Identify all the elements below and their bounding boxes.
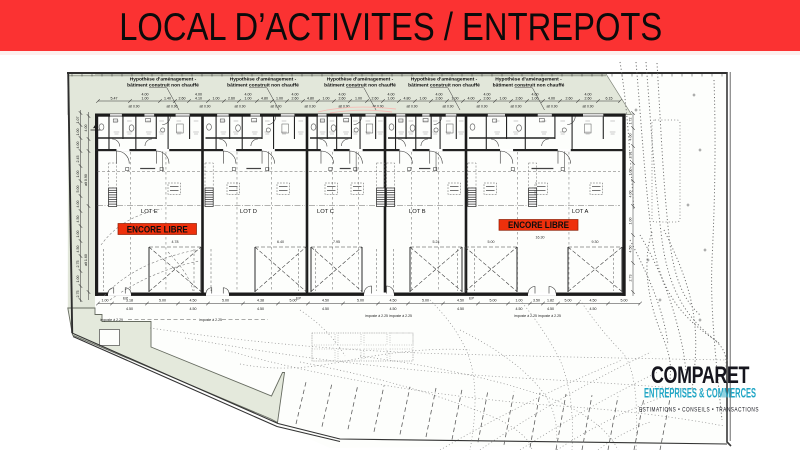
svg-text:alt 0.90: alt 0.90: [84, 174, 88, 186]
svg-text:1.00: 1.00: [76, 129, 80, 136]
svg-text:4.50: 4.50: [126, 307, 133, 311]
svg-text:1.00: 1.00: [388, 97, 395, 101]
svg-text:2.75: 2.75: [76, 261, 80, 268]
svg-text:5.47: 5.47: [111, 97, 118, 101]
svg-text:2.60: 2.60: [228, 97, 235, 101]
svg-text:2.60: 2.60: [516, 97, 523, 101]
svg-text:imposte à 2.25: imposte à 2.25: [389, 314, 412, 318]
svg-text:alt 0.90: alt 0.90: [304, 105, 315, 109]
svg-text:Hypothèse d’aménagement -: Hypothèse d’aménagement -: [230, 77, 297, 83]
svg-text:alt 0.90: alt 0.90: [270, 105, 281, 109]
svg-text:2.60: 2.60: [292, 97, 299, 101]
svg-text:4.50: 4.50: [516, 307, 523, 311]
svg-text:4.50: 4.50: [322, 299, 329, 303]
svg-text:imposte à 2.25: imposte à 2.25: [199, 318, 222, 322]
svg-text:LOT D: LOT D: [240, 209, 257, 215]
svg-text:4.00: 4.00: [195, 93, 202, 97]
svg-text:LOT B: LOT B: [409, 209, 426, 215]
svg-text:4.50: 4.50: [322, 307, 329, 311]
svg-text:EP: EP: [296, 297, 302, 301]
svg-text:2.60: 2.60: [566, 97, 573, 101]
svg-text:4.00: 4.00: [585, 93, 592, 97]
svg-text:4.00: 4.00: [436, 93, 443, 97]
svg-text:5.00: 5.00: [621, 299, 628, 303]
svg-text:4.00: 4.00: [292, 93, 299, 97]
svg-text:4.00: 4.00: [339, 93, 346, 97]
svg-text:4.00: 4.00: [548, 97, 555, 101]
svg-text:5.24: 5.24: [433, 240, 440, 244]
svg-text:alt 0.90: alt 0.90: [582, 105, 593, 109]
svg-text:2.60: 2.60: [372, 97, 379, 101]
svg-text:EP: EP: [469, 297, 475, 301]
svg-text:1.00: 1.00: [500, 97, 507, 101]
svg-text:Hypothèse d’aménagement -: Hypothèse d’aménagement -: [130, 77, 197, 83]
svg-text:7.95: 7.95: [333, 240, 340, 244]
svg-text:4.00: 4.00: [532, 93, 539, 97]
svg-text:4.50: 4.50: [190, 307, 197, 311]
svg-text:4.00: 4.00: [629, 191, 633, 198]
svg-text:alt 0.90: alt 0.90: [442, 105, 453, 109]
svg-text:Hypothèse d’aménagement -: Hypothèse d’aménagement -: [495, 77, 562, 83]
svg-text:4.50: 4.50: [629, 246, 633, 253]
svg-text:5.00: 5.00: [76, 186, 80, 193]
svg-text:9.30: 9.30: [592, 240, 599, 244]
svg-text:5.00: 5.00: [565, 299, 572, 303]
svg-text:4.50: 4.50: [257, 307, 264, 311]
svg-text:4.00: 4.00: [468, 97, 475, 101]
svg-text:4.80: 4.80: [404, 97, 411, 101]
svg-text:2.73: 2.73: [629, 275, 633, 282]
svg-text:alt 0.90: alt 0.90: [234, 105, 245, 109]
svg-text:imposte à 2.29: imposte à 2.29: [100, 318, 123, 322]
svg-text:1.00: 1.00: [516, 299, 523, 303]
svg-text:alt 0.90: alt 0.90: [166, 105, 177, 109]
svg-text:2.75: 2.75: [76, 291, 80, 298]
svg-text:4.00: 4.00: [388, 93, 395, 97]
svg-text:4.00: 4.00: [76, 142, 80, 149]
svg-text:1.82: 1.82: [547, 299, 554, 303]
svg-text:3.50: 3.50: [533, 299, 540, 303]
svg-text:1.00: 1.00: [629, 218, 633, 225]
svg-text:5.00: 5.00: [488, 240, 495, 244]
svg-text:ENCORE LIBRE: ENCORE LIBRE: [127, 224, 188, 234]
svg-text:ESTIMATIONS • CONSEILS • TRANS: ESTIMATIONS • CONSEILS • TRANSACTIONS: [639, 407, 759, 414]
svg-text:2.60: 2.60: [436, 97, 443, 101]
svg-text:imposte à 2.25: imposte à 2.25: [365, 314, 388, 318]
svg-text:imposte à 2.25: imposte à 2.25: [514, 314, 537, 318]
svg-text:Hypothèse d’aménagement -: Hypothèse d’aménagement -: [411, 77, 478, 83]
svg-text:alt 1.60: alt 1.60: [84, 254, 88, 266]
svg-text:EP: EP: [123, 297, 129, 301]
svg-text:LOT C: LOT C: [317, 209, 334, 215]
svg-text:4.80: 4.80: [307, 97, 314, 101]
svg-text:1.00: 1.00: [452, 97, 459, 101]
svg-text:alt 0.90: alt 0.90: [476, 105, 487, 109]
svg-text:1.00: 1.00: [420, 97, 427, 101]
svg-text:1.00: 1.00: [76, 276, 80, 283]
svg-text:1.40: 1.40: [164, 97, 171, 101]
svg-text:4.50: 4.50: [190, 299, 197, 303]
svg-text:1.07: 1.07: [76, 117, 80, 124]
svg-text:2.60: 2.60: [339, 97, 346, 101]
svg-text:1.00: 1.00: [213, 97, 220, 101]
svg-text:2.60: 2.60: [484, 97, 491, 101]
svg-text:5.00: 5.00: [159, 299, 166, 303]
svg-text:4.50: 4.50: [390, 299, 397, 303]
svg-text:5.00: 5.00: [357, 299, 364, 303]
svg-text:5.00: 5.00: [490, 299, 497, 303]
svg-text:1.00: 1.00: [142, 97, 149, 101]
svg-text:5.00: 5.00: [422, 299, 429, 303]
svg-text:4.00: 4.00: [76, 201, 80, 208]
svg-text:1.00: 1.00: [323, 97, 330, 101]
svg-text:4.50: 4.50: [457, 307, 464, 311]
svg-text:4.50: 4.50: [76, 216, 80, 223]
svg-text:6.40: 6.40: [277, 240, 284, 244]
svg-text:ENCORE LIBRE: ENCORE LIBRE: [508, 220, 569, 230]
svg-text:4.00: 4.00: [84, 125, 88, 132]
svg-text:16.30: 16.30: [536, 236, 545, 240]
svg-text:imposte à 2.25: imposte à 2.25: [538, 314, 561, 318]
svg-text:1.00: 1.00: [355, 97, 362, 101]
svg-text:1.00: 1.00: [245, 97, 252, 101]
svg-text:1.00: 1.00: [276, 97, 283, 101]
svg-text:4.50: 4.50: [390, 307, 397, 311]
svg-text:4.50: 4.50: [590, 307, 597, 311]
svg-text:Hypothèse d’aménagement -: Hypothèse d’aménagement -: [327, 77, 394, 83]
svg-text:2.60: 2.60: [179, 97, 186, 101]
svg-text:alt 0.90: alt 0.90: [128, 105, 139, 109]
svg-text:2.60: 2.60: [585, 97, 592, 101]
svg-text:1.00: 1.00: [532, 97, 539, 101]
svg-text:1.00: 1.00: [629, 169, 633, 176]
svg-text:1.00: 1.00: [76, 231, 80, 238]
svg-text:alt 0.90: alt 0.90: [199, 105, 210, 109]
svg-text:5.00: 5.00: [222, 299, 229, 303]
svg-text:1.00: 1.00: [76, 171, 80, 178]
svg-text:4.00: 4.00: [142, 93, 149, 97]
svg-text:4.78: 4.78: [172, 240, 179, 244]
svg-text:4.50: 4.50: [457, 299, 464, 303]
svg-text:4.38: 4.38: [257, 299, 264, 303]
svg-text:alt 0.90: alt 0.90: [406, 105, 417, 109]
svg-text:LOT A: LOT A: [572, 209, 588, 215]
svg-text:alt 0.90: alt 0.90: [546, 105, 557, 109]
svg-text:4.50: 4.50: [590, 299, 597, 303]
svg-text:1.00: 1.00: [102, 299, 109, 303]
svg-text:ENTREPRISES & COMMERCES: ENTREPRISES & COMMERCES: [644, 386, 756, 401]
svg-text:4.00: 4.00: [245, 93, 252, 97]
svg-text:1.72: 1.72: [629, 118, 633, 125]
svg-text:4.50: 4.50: [76, 246, 80, 253]
svg-text:4.80: 4.80: [261, 97, 268, 101]
svg-text:2.45: 2.45: [76, 156, 80, 163]
svg-text:4.50: 4.50: [547, 307, 554, 311]
svg-text:6.15: 6.15: [606, 97, 613, 101]
svg-text:alt 0.90: alt 0.90: [510, 105, 521, 109]
svg-text:4.00: 4.00: [484, 93, 491, 97]
svg-text:4.10: 4.10: [195, 97, 202, 101]
